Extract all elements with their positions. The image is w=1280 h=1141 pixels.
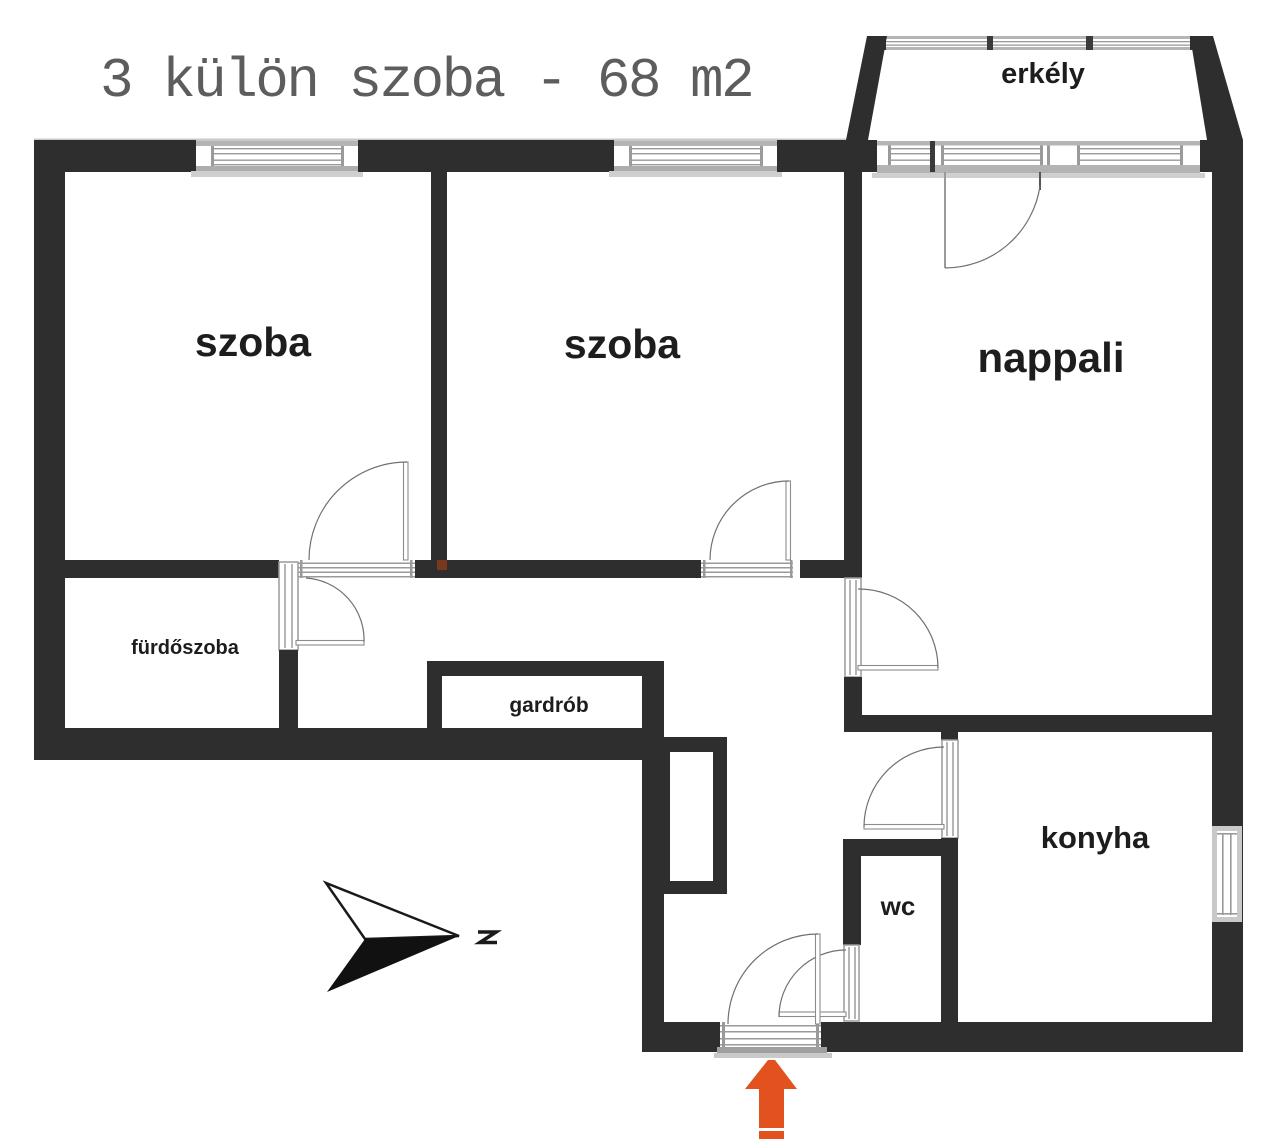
svg-text:3 külön szoba - 68 m2: 3 külön szoba - 68 m2 [100,49,752,113]
svg-text:szoba: szoba [564,321,681,367]
svg-text:gardrób: gardrób [509,694,588,717]
svg-text:szoba: szoba [195,319,312,365]
svg-text:nappali: nappali [977,334,1124,381]
svg-text:konyha: konyha [1041,820,1150,855]
svg-text:wc: wc [880,891,916,921]
svg-text:erkély: erkély [1001,58,1085,90]
svg-text:fürdőszoba: fürdőszoba [131,637,240,659]
